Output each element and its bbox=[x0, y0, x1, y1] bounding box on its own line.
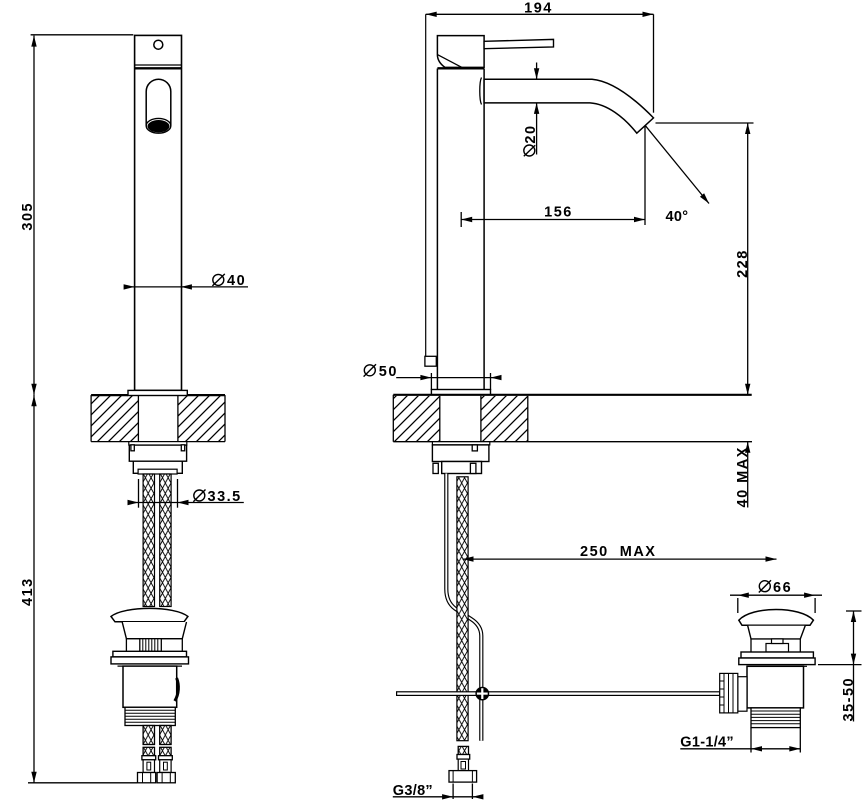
svg-text:194: 194 bbox=[524, 0, 553, 16]
svg-text:G1-1/4”: G1-1/4” bbox=[680, 734, 734, 750]
svg-text:40: 40 bbox=[227, 273, 246, 289]
svg-text:250 MAX: 250 MAX bbox=[580, 544, 656, 560]
svg-text:40 MAX: 40 MAX bbox=[735, 446, 751, 507]
svg-text:413: 413 bbox=[20, 577, 36, 606]
svg-text:20: 20 bbox=[523, 124, 539, 143]
svg-text:228: 228 bbox=[735, 249, 751, 278]
svg-text:156: 156 bbox=[544, 205, 573, 221]
svg-text:40°: 40° bbox=[666, 209, 689, 225]
svg-text:33.5: 33.5 bbox=[208, 489, 242, 505]
svg-text:35-50: 35-50 bbox=[841, 677, 857, 722]
svg-text:50: 50 bbox=[379, 364, 398, 380]
svg-text:G3/8”: G3/8” bbox=[393, 783, 433, 799]
svg-text:305: 305 bbox=[20, 202, 36, 231]
svg-text:66: 66 bbox=[773, 580, 792, 596]
